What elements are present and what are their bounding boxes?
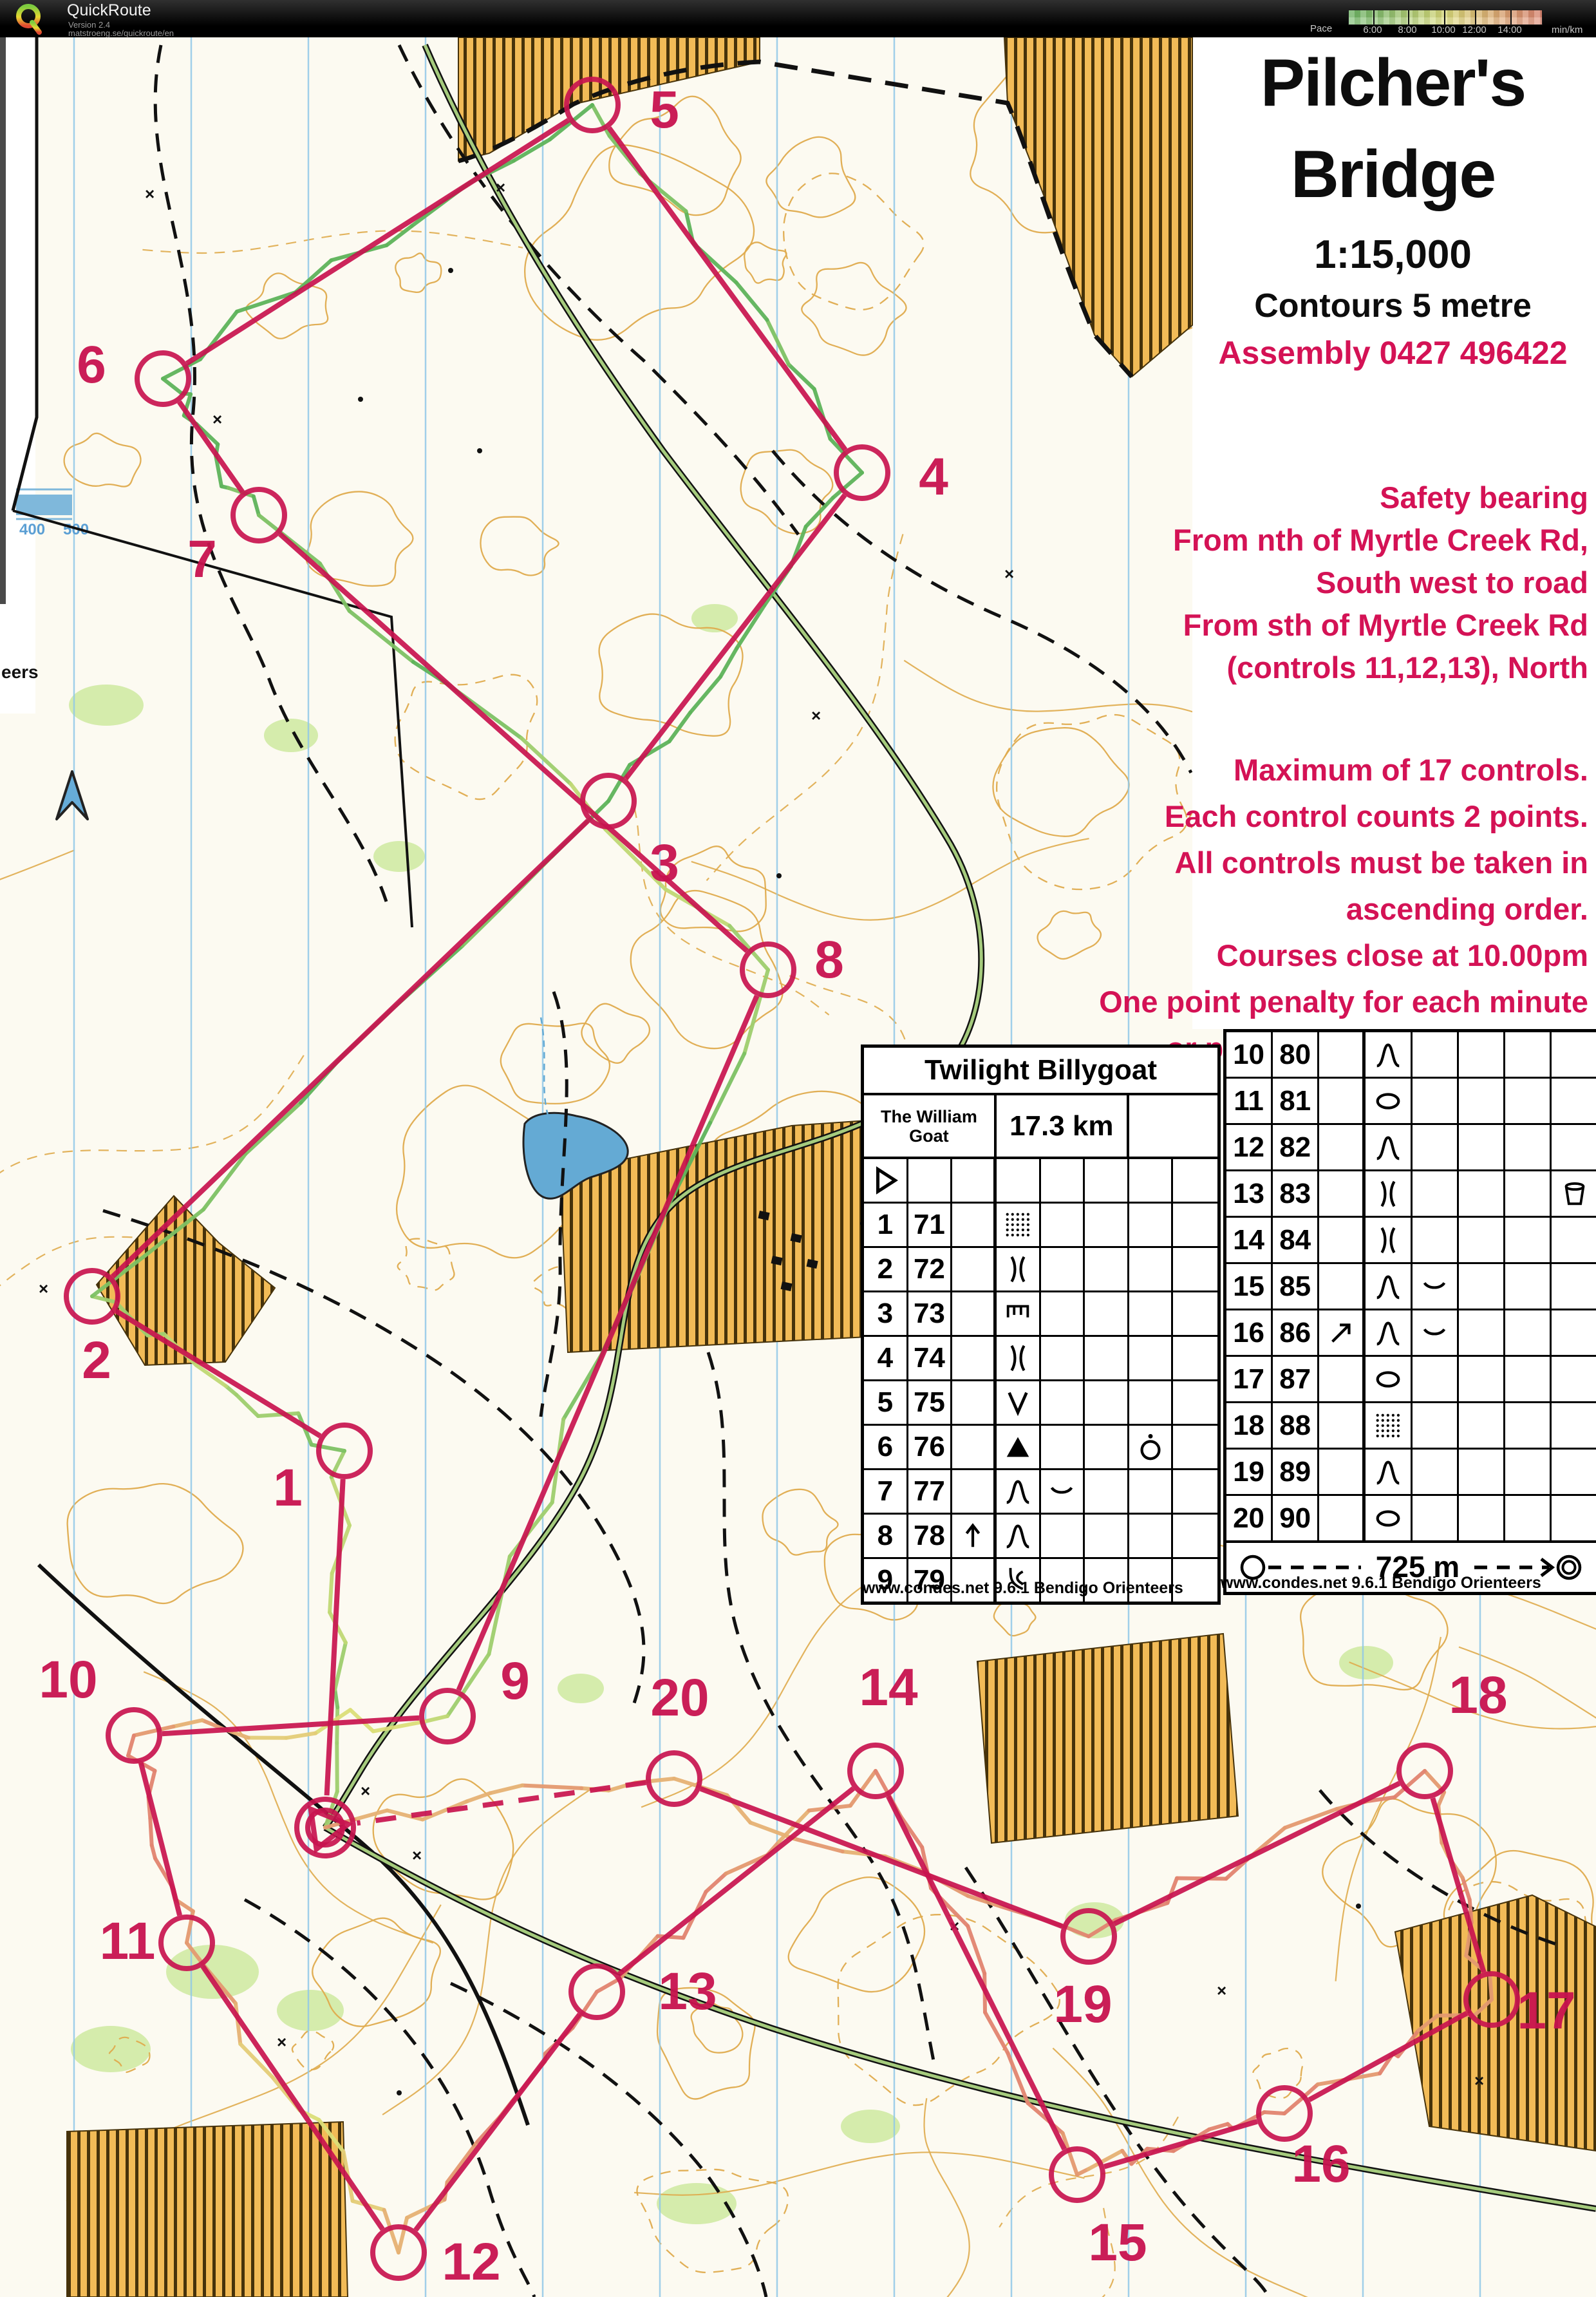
- control-cell: 5: [864, 1381, 908, 1424]
- control-cell: 19: [1226, 1450, 1273, 1494]
- control-cell: [1413, 1171, 1459, 1216]
- control-cell: [1459, 1403, 1505, 1448]
- control-cell: [1129, 1159, 1174, 1202]
- control-cell: [1505, 1496, 1552, 1540]
- control-cell: [1173, 1337, 1217, 1379]
- svg-text:×: ×: [412, 1846, 422, 1865]
- map-contour-interval: Contours 5 metre: [1194, 287, 1591, 325]
- control-descriptions-left: Twilight Billygoat The William Goat 17.3…: [861, 1045, 1221, 1605]
- control-number: 4: [919, 448, 948, 506]
- control-cell: [864, 1159, 908, 1202]
- control-cell: [1366, 1310, 1412, 1355]
- pace-tick-label: 8:00: [1398, 24, 1416, 35]
- svg-text:×: ×: [1217, 1981, 1226, 2000]
- control-cell: 74: [908, 1337, 953, 1379]
- control-cell: [1366, 1032, 1412, 1077]
- control-row: 272: [864, 1248, 1217, 1292]
- pace-tick: [1444, 10, 1445, 24]
- control-number: 9: [500, 1652, 530, 1710]
- condes-credit: www.condes.net 9.6.1 Bendigo Orienteers: [863, 1579, 1183, 1598]
- control-cell: [1366, 1450, 1412, 1494]
- control-cell: [1413, 1032, 1459, 1077]
- control-cell: 8: [864, 1515, 908, 1557]
- class-name: The William Goat: [864, 1095, 997, 1157]
- control-cell: 85: [1273, 1264, 1319, 1309]
- control-cell: [1173, 1381, 1217, 1424]
- control-cell: [1413, 1079, 1459, 1123]
- control-cell: 12: [1226, 1125, 1273, 1169]
- pace-gradient-bar: [1348, 10, 1543, 25]
- rule-line: All controls must be taken in: [1066, 840, 1588, 886]
- control-cell: [1505, 1450, 1552, 1494]
- control-cell: [1129, 1470, 1174, 1513]
- control-cell: [1041, 1426, 1085, 1468]
- safety-line: Safety bearing: [1066, 477, 1588, 519]
- control-cell: [1505, 1171, 1552, 1216]
- control-cell: [1173, 1248, 1217, 1290]
- control-cell: [1552, 1357, 1596, 1401]
- app-website: matstroeng.se/quickroute/en: [68, 28, 174, 38]
- pace-tick: [1475, 10, 1476, 24]
- control-cell: 73: [908, 1292, 953, 1335]
- control-cell: [1173, 1204, 1217, 1246]
- control-cell: [1085, 1292, 1129, 1335]
- control-number: 15: [1088, 2213, 1147, 2272]
- control-cell: [1413, 1403, 1459, 1448]
- control-row: 878: [864, 1515, 1217, 1559]
- control-cell: 3: [864, 1292, 908, 1335]
- control-cell: [1505, 1125, 1552, 1169]
- control-cell: [1041, 1381, 1085, 1424]
- control-cell: [1505, 1357, 1552, 1401]
- pace-unit: min/km: [1552, 24, 1582, 35]
- control-cell: [997, 1515, 1041, 1557]
- svg-text:×: ×: [39, 1279, 48, 1298]
- control-cell: [1505, 1032, 1552, 1077]
- quickroute-logo-icon: [13, 2, 45, 35]
- control-cell: [1413, 1496, 1459, 1540]
- control-cell: 16: [1226, 1310, 1273, 1355]
- assembly-phone: Assembly 0427 496422: [1194, 334, 1591, 372]
- control-row: 1383: [1226, 1171, 1596, 1218]
- control-cell: [1552, 1125, 1596, 1169]
- control-number: 1: [273, 1459, 303, 1517]
- control-row: 171: [864, 1204, 1217, 1248]
- control-cell: [1173, 1426, 1217, 1468]
- control-cell: 6: [864, 1426, 908, 1468]
- control-cell: 89: [1273, 1450, 1319, 1494]
- control-cell: [1459, 1310, 1505, 1355]
- svg-text:×: ×: [1004, 564, 1014, 583]
- control-cell: [1129, 1515, 1174, 1557]
- control-number: 13: [658, 1962, 717, 2021]
- control-cell: [1319, 1032, 1366, 1077]
- control-cell: 20: [1226, 1496, 1273, 1540]
- control-cell: [952, 1515, 997, 1557]
- control-cell: 72: [908, 1248, 953, 1290]
- control-cell: [1505, 1403, 1552, 1448]
- control-cell: [997, 1426, 1041, 1468]
- safety-line: From sth of Myrtle Creek Rd: [1066, 604, 1588, 647]
- control-cell: [1413, 1357, 1459, 1401]
- control-cell: 86: [1273, 1310, 1319, 1355]
- control-cell: [1459, 1125, 1505, 1169]
- control-cell: [1319, 1171, 1366, 1216]
- control-cell: [1085, 1381, 1129, 1424]
- svg-text:×: ×: [361, 1781, 370, 1801]
- control-cell: 87: [1273, 1357, 1319, 1401]
- control-row: 1888: [1226, 1403, 1596, 1450]
- control-cell: [1173, 1159, 1217, 1202]
- pace-label: Pace: [1310, 23, 1332, 34]
- control-cell: [952, 1292, 997, 1335]
- control-cell: [1459, 1450, 1505, 1494]
- pace-tick-label: 10:00: [1431, 24, 1456, 35]
- control-cell: [997, 1204, 1041, 1246]
- control-cell: [997, 1159, 1041, 1202]
- control-cell: [1459, 1079, 1505, 1123]
- control-cell: [997, 1248, 1041, 1290]
- control-cell: [997, 1292, 1041, 1335]
- control-cell: [1085, 1337, 1129, 1379]
- rule-line: Each control counts 2 points.: [1066, 793, 1588, 840]
- control-cell: [952, 1337, 997, 1379]
- control-cell: 15: [1226, 1264, 1273, 1309]
- control-cell: [1129, 1426, 1174, 1468]
- control-cell: [952, 1204, 997, 1246]
- control-cell: [1129, 1292, 1174, 1335]
- control-cell: [1129, 1204, 1174, 1246]
- control-cell: [1041, 1292, 1085, 1335]
- control-cell: [1505, 1218, 1552, 1262]
- control-number: 3: [650, 834, 679, 893]
- control-cell: 77: [908, 1470, 953, 1513]
- pace-tick-label: 12:00: [1462, 24, 1487, 35]
- control-number: 2: [82, 1331, 111, 1390]
- control-cell: [1413, 1450, 1459, 1494]
- control-cell: [1319, 1357, 1366, 1401]
- control-cell: 1: [864, 1204, 908, 1246]
- pace-tick-label: 6:00: [1363, 24, 1382, 35]
- control-cell: [1552, 1032, 1596, 1077]
- control-cell: 71: [908, 1204, 953, 1246]
- rule-line: Maximum of 17 controls.: [1066, 747, 1588, 793]
- control-cell: [1319, 1403, 1366, 1448]
- control-cell: [1319, 1079, 1366, 1123]
- control-cell: [1413, 1218, 1459, 1262]
- course-length: 17.3 km: [997, 1095, 1129, 1157]
- control-cell: 18: [1226, 1403, 1273, 1448]
- control-cell: 10: [1226, 1032, 1273, 1077]
- control-cell: [1319, 1450, 1366, 1494]
- control-cell: [952, 1159, 997, 1202]
- control-row: 1686: [1226, 1310, 1596, 1357]
- control-cell: [1129, 1337, 1174, 1379]
- control-cell: 17: [1226, 1357, 1273, 1401]
- control-cell: [1085, 1515, 1129, 1557]
- control-row: 575: [864, 1381, 1217, 1426]
- rule-line: ascending order.: [1066, 886, 1588, 932]
- control-cell: 75: [908, 1381, 953, 1424]
- condes-credit: www.condes.net 9.6.1 Bendigo Orienteers: [1221, 1574, 1541, 1593]
- map-title-line1: Pilcher's: [1194, 37, 1591, 129]
- control-number: 8: [814, 931, 844, 989]
- control-cell: [1173, 1292, 1217, 1335]
- control-row: 373: [864, 1292, 1217, 1337]
- control-descriptions-right: 1080118112821383148415851686178718881989…: [1223, 1029, 1596, 1595]
- safety-bearing-text: Safety bearingFrom nth of Myrtle Creek R…: [1066, 477, 1588, 689]
- control-cell: [1366, 1357, 1412, 1401]
- control-cell: [1041, 1248, 1085, 1290]
- control-cell: [1173, 1470, 1217, 1513]
- control-cell: 80: [1273, 1032, 1319, 1077]
- control-cell: [1319, 1125, 1366, 1169]
- control-cell: [1552, 1218, 1596, 1262]
- control-cell: [1459, 1357, 1505, 1401]
- control-cell: [997, 1337, 1041, 1379]
- control-cell: [1041, 1159, 1085, 1202]
- control-cell: [1505, 1310, 1552, 1355]
- control-cell: [1366, 1218, 1412, 1262]
- safety-line: South west to road: [1066, 562, 1588, 604]
- pace-tick: [1373, 10, 1375, 24]
- control-number: 14: [859, 1658, 918, 1717]
- control-cell: 82: [1273, 1125, 1319, 1169]
- control-cell: [1459, 1264, 1505, 1309]
- course-rules-text: Maximum of 17 controls.Each control coun…: [1066, 747, 1588, 1072]
- control-row: 1484: [1226, 1218, 1596, 1264]
- control-cell: [1319, 1496, 1366, 1540]
- control-cell: [1413, 1310, 1459, 1355]
- control-cell: 13: [1226, 1171, 1273, 1216]
- control-cell: 2: [864, 1248, 908, 1290]
- map-title-line2: Bridge: [1194, 129, 1591, 220]
- control-cell: [997, 1470, 1041, 1513]
- control-cell: [1085, 1248, 1129, 1290]
- control-cell: [952, 1248, 997, 1290]
- control-cell: [1085, 1470, 1129, 1513]
- pace-tick: [1510, 10, 1512, 24]
- control-cell: [1041, 1515, 1085, 1557]
- control-cell: 84: [1273, 1218, 1319, 1262]
- course-name: Twilight Billygoat: [864, 1048, 1217, 1095]
- control-row: 1181: [1226, 1079, 1596, 1125]
- control-cell: [1413, 1125, 1459, 1169]
- control-number: 7: [187, 530, 217, 589]
- control-cell: [1505, 1079, 1552, 1123]
- control-cell: [1505, 1264, 1552, 1309]
- control-cell: [1366, 1496, 1412, 1540]
- pace-tick: [1408, 10, 1409, 24]
- control-cell: [1319, 1218, 1366, 1262]
- map-info-panel: Pilcher's Bridge 1:15,000 Contours 5 met…: [1194, 37, 1591, 372]
- svg-text:×: ×: [1474, 2071, 1484, 2090]
- control-cell: [1366, 1171, 1412, 1216]
- rule-line: Courses close at 10.00pm: [1066, 932, 1588, 979]
- control-cell: [1459, 1171, 1505, 1216]
- map-scale: 1:15,000: [1194, 232, 1591, 278]
- control-cell: [1129, 1381, 1174, 1424]
- control-number: 6: [77, 336, 106, 394]
- svg-text:×: ×: [496, 178, 505, 197]
- control-row: 777: [864, 1470, 1217, 1515]
- control-number: 11: [100, 1912, 156, 1971]
- control-row: 2090: [1226, 1496, 1596, 1540]
- control-cell: [1085, 1204, 1129, 1246]
- control-cell: [908, 1159, 953, 1202]
- safety-line: From nth of Myrtle Creek Rd,: [1066, 519, 1588, 562]
- control-cell: 76: [908, 1426, 953, 1468]
- app-title-bar: QuickRoute Version 2.4 matstroeng.se/qui…: [0, 0, 1596, 37]
- control-number: 17: [1517, 1981, 1575, 2040]
- control-cell: 78: [908, 1515, 953, 1557]
- control-cell: 7: [864, 1470, 908, 1513]
- control-cell: [1552, 1403, 1596, 1448]
- control-cell: [1041, 1204, 1085, 1246]
- control-cell: [1085, 1159, 1129, 1202]
- control-cell: 88: [1273, 1403, 1319, 1448]
- control-cell: [1366, 1264, 1412, 1309]
- control-number: 18: [1449, 1666, 1507, 1725]
- control-cell: [1319, 1264, 1366, 1309]
- control-cell: [1366, 1079, 1412, 1123]
- control-cell: [1041, 1337, 1085, 1379]
- control-row: 1787: [1226, 1357, 1596, 1403]
- control-cell: [1552, 1171, 1596, 1216]
- control-row: 1282: [1226, 1125, 1596, 1171]
- climb-cell: [1129, 1095, 1217, 1157]
- control-row: 474: [864, 1337, 1217, 1381]
- pace-tick-label: 14:00: [1497, 24, 1522, 35]
- control-cell: [1173, 1515, 1217, 1557]
- svg-text:×: ×: [145, 184, 155, 203]
- control-cell: [1459, 1218, 1505, 1262]
- svg-text:×: ×: [277, 2032, 286, 2052]
- safety-line: (controls 11,12,13), North: [1066, 647, 1588, 689]
- control-cell: [952, 1470, 997, 1513]
- control-row: 676: [864, 1426, 1217, 1470]
- control-cell: [1552, 1264, 1596, 1309]
- control-cell: [1552, 1079, 1596, 1123]
- control-cell: [1552, 1496, 1596, 1540]
- control-cell: [997, 1381, 1041, 1424]
- svg-text:×: ×: [811, 706, 821, 725]
- control-number: 12: [442, 2233, 500, 2291]
- control-number: 5: [650, 80, 679, 139]
- control-cell: [952, 1381, 997, 1424]
- control-number: 20: [650, 1668, 709, 1727]
- control-cell: 90: [1273, 1496, 1319, 1540]
- control-number: 10: [39, 1650, 97, 1709]
- rule-line: One point penalty for each minute: [1066, 979, 1588, 1025]
- control-cell: [1319, 1310, 1366, 1355]
- control-cell: [952, 1426, 997, 1468]
- control-row: 1080: [1226, 1032, 1596, 1079]
- control-cell: 4: [864, 1337, 908, 1379]
- control-cell: [1129, 1248, 1174, 1290]
- control-row: 1989: [1226, 1450, 1596, 1496]
- control-cell: 14: [1226, 1218, 1273, 1262]
- control-cell: [1366, 1403, 1412, 1448]
- control-cell: 11: [1226, 1079, 1273, 1123]
- app-name: QuickRoute: [67, 1, 151, 20]
- svg-text:×: ×: [212, 410, 222, 429]
- control-cell: [1085, 1426, 1129, 1468]
- control-row: 1585: [1226, 1264, 1596, 1310]
- control-cell: [1552, 1310, 1596, 1355]
- control-cell: [1459, 1496, 1505, 1540]
- control-cell: 83: [1273, 1171, 1319, 1216]
- control-number: 19: [1053, 1975, 1112, 2034]
- control-cell: [1413, 1264, 1459, 1309]
- control-cell: [1041, 1470, 1085, 1513]
- control-cell: [1552, 1450, 1596, 1494]
- control-cell: [1366, 1125, 1412, 1169]
- control-cell: [1459, 1032, 1505, 1077]
- control-cell: 81: [1273, 1079, 1319, 1123]
- control-row: [864, 1159, 1217, 1204]
- control-number: 16: [1291, 2135, 1350, 2193]
- svg-text:400: 400: [19, 521, 45, 538]
- map-edge-text: eers: [1, 662, 39, 683]
- quickroute-window: { "header": { "app_name": "QuickRoute", …: [0, 0, 1596, 2297]
